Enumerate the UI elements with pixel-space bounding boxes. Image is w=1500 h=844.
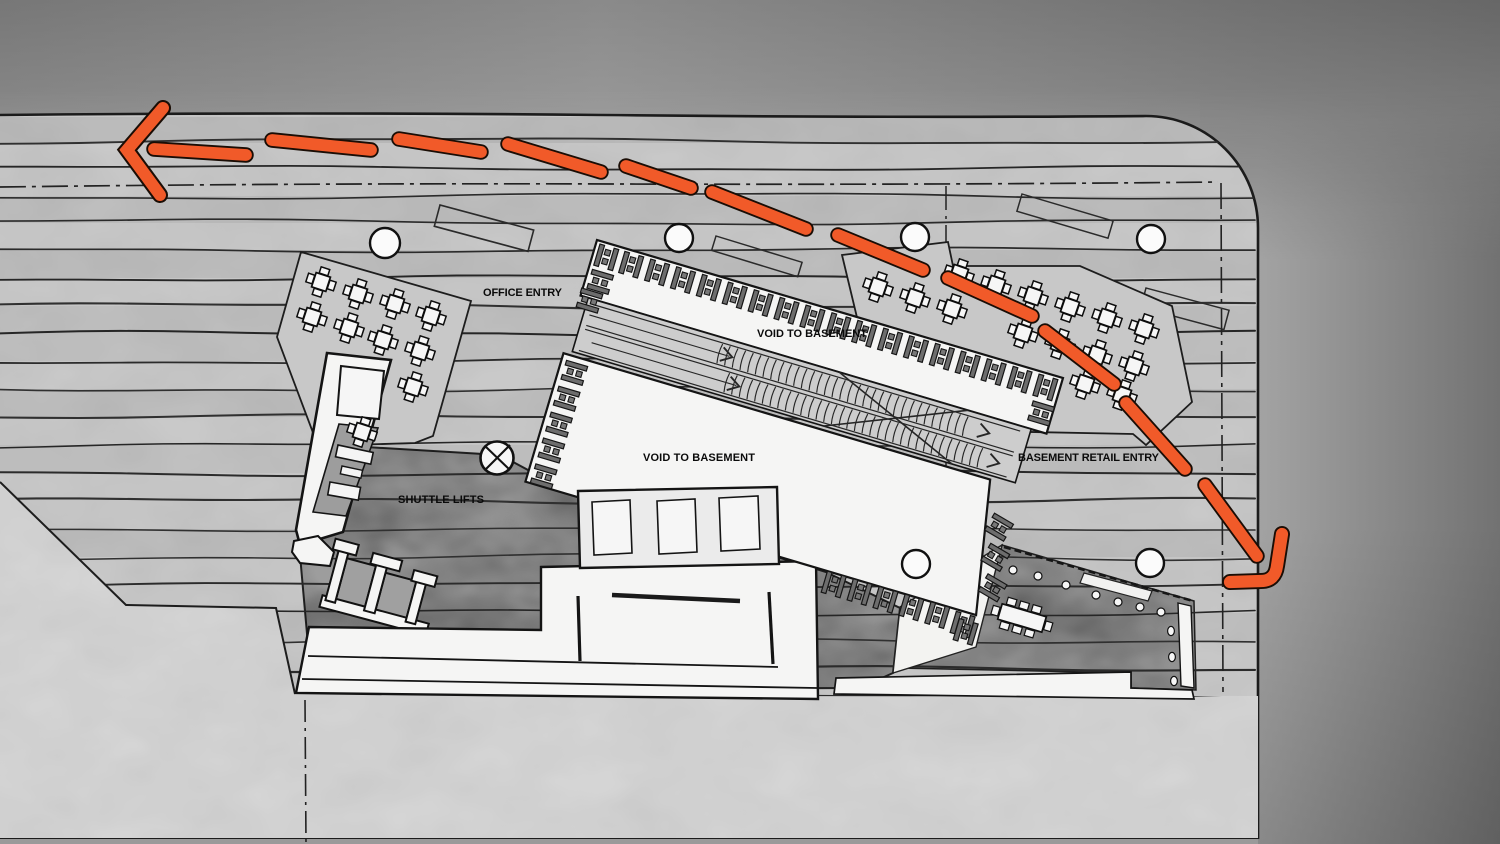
svg-text:VOID TO BASEMENT: VOID TO BASEMENT	[643, 452, 755, 464]
svg-text:VOID TO BASEMENT: VOID TO BASEMENT	[757, 328, 867, 340]
svg-text:OFFICE ENTRY: OFFICE ENTRY	[483, 287, 563, 299]
svg-text:SHUTTLE LIFTS: SHUTTLE LIFTS	[398, 494, 484, 506]
svg-text:BASEMENT RETAIL ENTRY: BASEMENT RETAIL ENTRY	[1018, 452, 1160, 464]
